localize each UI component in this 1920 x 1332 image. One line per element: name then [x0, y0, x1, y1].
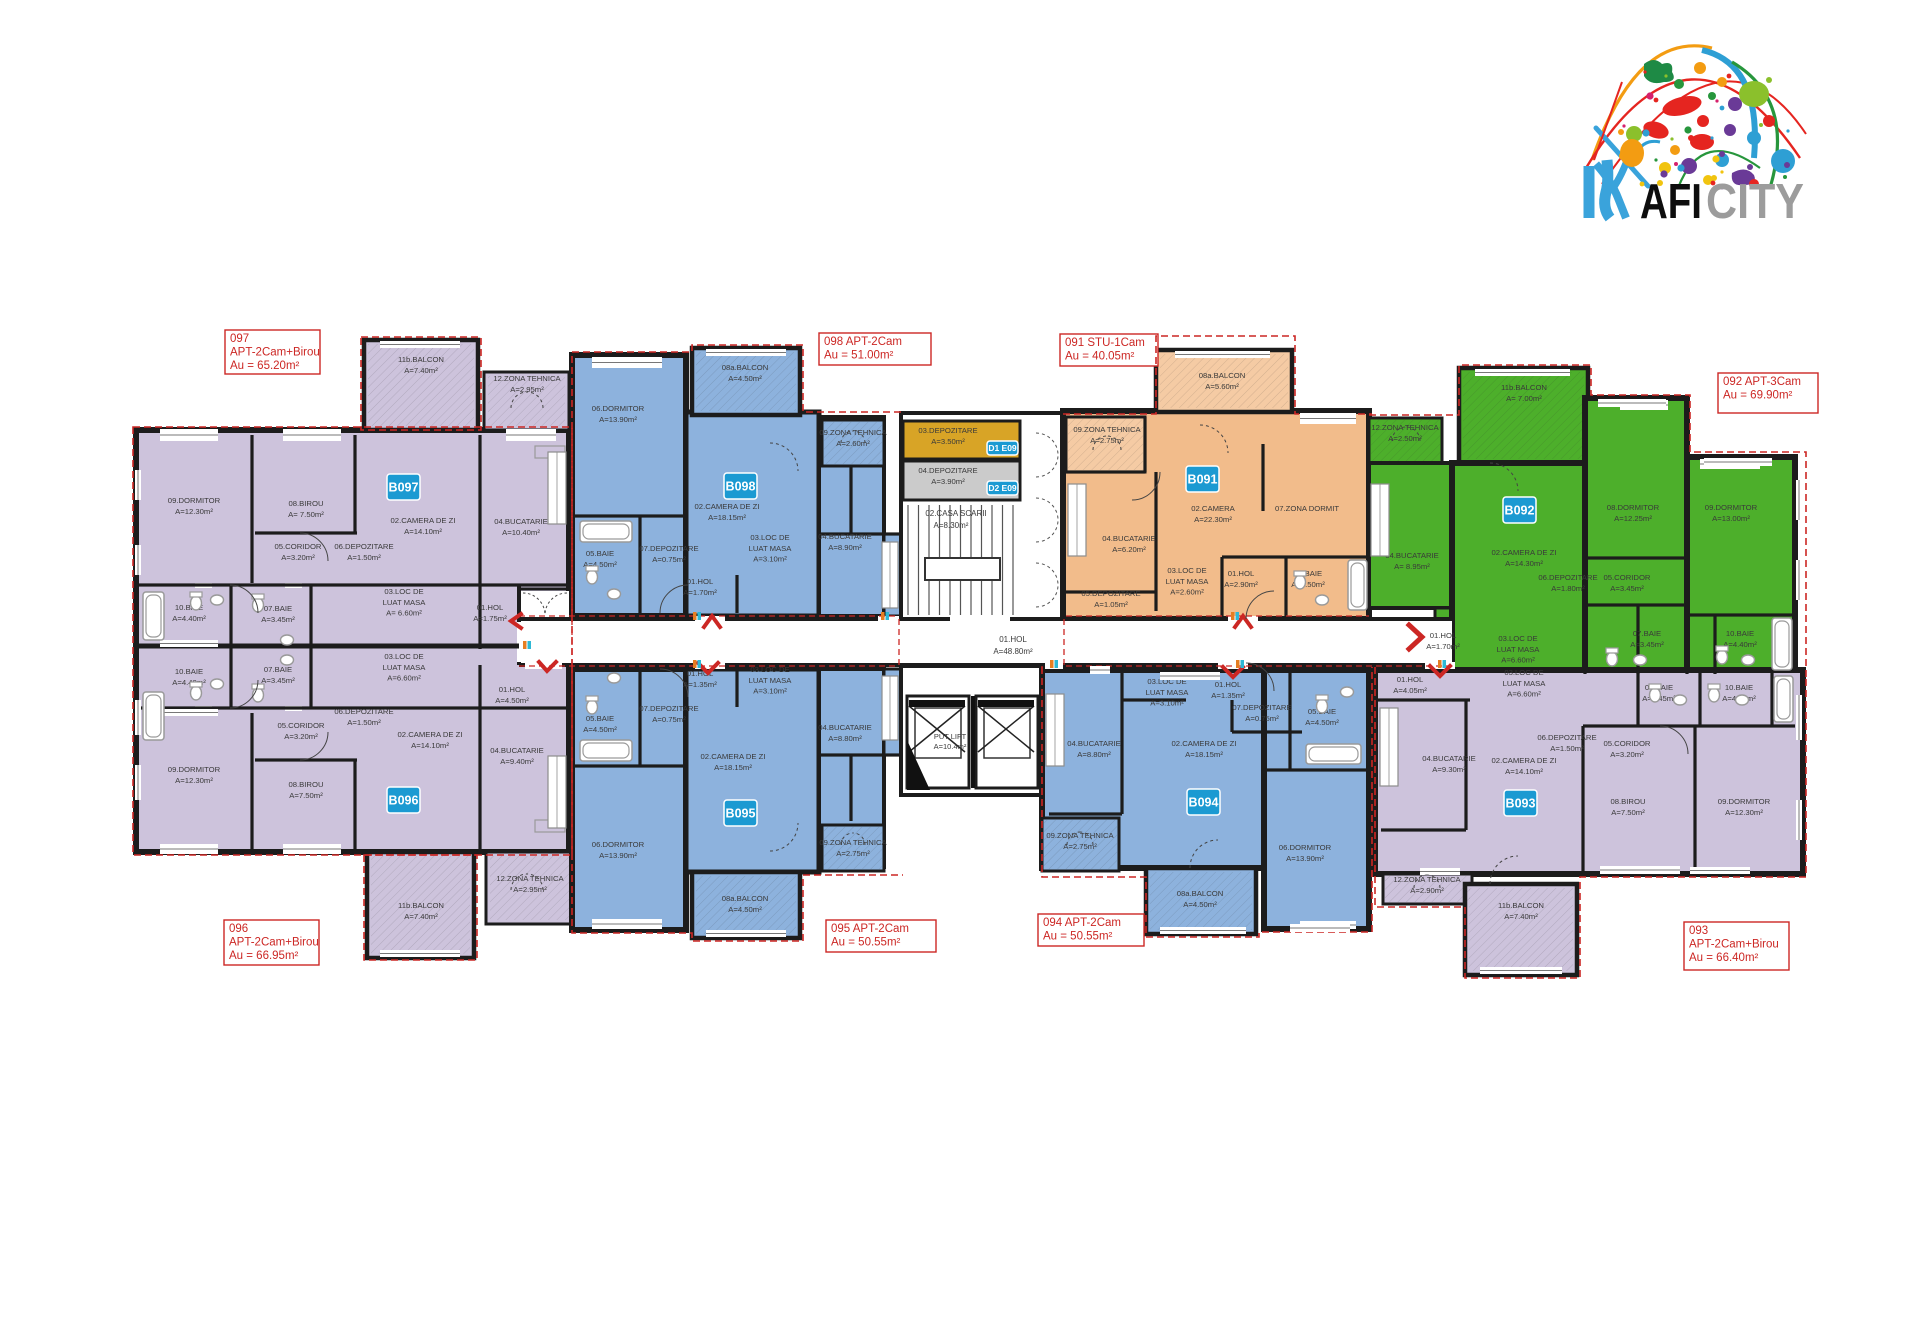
svg-text:09.DORMITOR: 09.DORMITOR — [168, 765, 221, 774]
svg-text:03.LOC DE: 03.LOC DE — [384, 587, 423, 596]
svg-text:B093: B093 — [1506, 797, 1536, 811]
svg-text:091 STU-1Cam: 091 STU-1Cam — [1065, 337, 1145, 349]
svg-text:A=3.10m²: A=3.10m² — [753, 555, 787, 564]
svg-text:A=1.80m²: A=1.80m² — [1551, 584, 1585, 593]
svg-text:A=14.30m²: A=14.30m² — [1505, 559, 1543, 568]
svg-text:094 APT-2Cam: 094 APT-2Cam — [1043, 917, 1121, 929]
svg-text:A=2.75m²: A=2.75m² — [836, 849, 870, 858]
svg-text:04.BUCATARIE: 04.BUCATARIE — [1385, 551, 1439, 560]
svg-text:11b.BALCON: 11b.BALCON — [398, 355, 444, 364]
svg-text:01.HOL: 01.HOL — [499, 685, 526, 694]
svg-text:092 APT-3Cam: 092 APT-3Cam — [1723, 376, 1801, 388]
svg-text:A= 7.00m²: A= 7.00m² — [1506, 394, 1542, 403]
svg-text:10.BAIE: 10.BAIE — [1726, 629, 1754, 638]
svg-text:A=4.40m²: A=4.40m² — [172, 614, 206, 623]
svg-text:A=3.20m²: A=3.20m² — [1610, 750, 1644, 759]
svg-text:01.HOL: 01.HOL — [1215, 680, 1242, 689]
svg-text:B098: B098 — [726, 480, 756, 494]
svg-text:10.BAIE: 10.BAIE — [1725, 683, 1753, 692]
svg-text:01.HOL: 01.HOL — [477, 603, 504, 612]
svg-text:A=3.10m²: A=3.10m² — [753, 687, 787, 696]
svg-text:08.BIROU: 08.BIROU — [288, 780, 323, 789]
svg-text:A=5.60m²: A=5.60m² — [1205, 382, 1239, 391]
svg-text:LUAT MASA: LUAT MASA — [1166, 577, 1210, 586]
svg-text:A=48.80m²: A=48.80m² — [993, 647, 1033, 656]
svg-text:A=13.90m²: A=13.90m² — [1286, 854, 1324, 863]
svg-text:07.DEPOZITARE: 07.DEPOZITARE — [639, 544, 698, 553]
svg-text:04.BUCATARIE: 04.BUCATARIE — [1102, 534, 1156, 543]
svg-text:A=8.30m²: A=8.30m² — [934, 521, 969, 530]
svg-text:A=2.90m²: A=2.90m² — [1410, 886, 1444, 895]
svg-text:A=14.10m²: A=14.10m² — [404, 527, 442, 536]
svg-text:08a.BALCON: 08a.BALCON — [1177, 889, 1224, 898]
svg-text:A=3.20m²: A=3.20m² — [284, 732, 318, 741]
svg-text:12.ZONA TEHNICA: 12.ZONA TEHNICA — [496, 874, 564, 883]
svg-text:A=12.30m²: A=12.30m² — [175, 507, 213, 516]
svg-text:05.CORIDOR: 05.CORIDOR — [1604, 573, 1651, 582]
svg-text:A=13.90m²: A=13.90m² — [599, 851, 637, 860]
svg-text:02.CAMERA DE ZI: 02.CAMERA DE ZI — [391, 516, 456, 525]
svg-text:08a.BALCON: 08a.BALCON — [722, 894, 769, 903]
svg-text:APT-2Cam+Birou: APT-2Cam+Birou — [230, 347, 320, 359]
svg-text:09.ZONA TEHNICA: 09.ZONA TEHNICA — [1073, 425, 1141, 434]
svg-text:A=9.30m²: A=9.30m² — [1432, 765, 1466, 774]
svg-text:097: 097 — [230, 333, 249, 345]
svg-text:06.DORMITOR: 06.DORMITOR — [1279, 843, 1332, 852]
svg-text:A=4.50m²: A=4.50m² — [1183, 900, 1217, 909]
svg-text:02.CAMERA DE ZI: 02.CAMERA DE ZI — [1492, 548, 1557, 557]
svg-text:A=7.40m²: A=7.40m² — [404, 366, 438, 375]
svg-text:03.DEPOZITARE: 03.DEPOZITARE — [918, 426, 977, 435]
svg-text:07.BAIE: 07.BAIE — [264, 604, 292, 613]
svg-text:A=0.75m²: A=0.75m² — [1245, 714, 1279, 723]
svg-text:09.ZONA TEHNICA: 09.ZONA TEHNICA — [819, 428, 887, 437]
svg-text:APT-2Cam+Birou: APT-2Cam+Birou — [1689, 939, 1779, 951]
svg-text:A=12.30m²: A=12.30m² — [1725, 808, 1763, 817]
svg-text:01.HOL: 01.HOL — [687, 577, 714, 586]
svg-text:A=2.90m²: A=2.90m² — [1224, 580, 1258, 589]
svg-text:04.BUCATARIE: 04.BUCATARIE — [818, 723, 872, 732]
svg-text:09.DORMITOR: 09.DORMITOR — [1718, 797, 1771, 806]
svg-text:AFI: AFI — [1640, 175, 1702, 229]
svg-text:02.CAMERA: 02.CAMERA — [1191, 504, 1235, 513]
svg-text:Au = 66.95m²: Au = 66.95m² — [229, 950, 299, 962]
svg-text:A=13.00m²: A=13.00m² — [1712, 514, 1750, 523]
svg-text:A=10.4m²: A=10.4m² — [934, 742, 967, 751]
svg-text:A=14.10m²: A=14.10m² — [1505, 767, 1543, 776]
svg-text:05.CORIDOR: 05.CORIDOR — [275, 542, 322, 551]
svg-text:01.HOL: 01.HOL — [999, 635, 1027, 644]
svg-text:07.ZONA DORMIT: 07.ZONA DORMIT — [1275, 504, 1339, 513]
svg-text:05.BAIE: 05.BAIE — [586, 549, 614, 558]
svg-text:A=6.60m²: A=6.60m² — [387, 674, 421, 683]
svg-text:A=6.60m²: A=6.60m² — [1501, 656, 1535, 665]
svg-text:LUAT MASA: LUAT MASA — [383, 663, 427, 672]
svg-text:Au = 40.05m²: Au = 40.05m² — [1065, 351, 1135, 363]
svg-text:Au = 65.20m²: Au = 65.20m² — [230, 360, 300, 372]
svg-text:A= 8.95m²: A= 8.95m² — [1394, 562, 1430, 571]
svg-text:08a.BALCON: 08a.BALCON — [722, 363, 769, 372]
svg-text:A=7.40m²: A=7.40m² — [404, 912, 438, 921]
svg-text:LUAT MASA: LUAT MASA — [1503, 679, 1547, 688]
svg-text:A=18.15m²: A=18.15m² — [1185, 750, 1223, 759]
svg-text:A=7.50m²: A=7.50m² — [289, 791, 323, 800]
svg-text:A=3.50m²: A=3.50m² — [931, 437, 965, 446]
svg-text:B091: B091 — [1188, 473, 1218, 487]
svg-text:LUAT MASA: LUAT MASA — [1146, 688, 1190, 697]
svg-text:07.DEPOZITARE: 07.DEPOZITARE — [1232, 703, 1291, 712]
svg-text:B094: B094 — [1189, 796, 1219, 810]
svg-text:A=1.70m²: A=1.70m² — [683, 588, 717, 597]
svg-text:08.BIROU: 08.BIROU — [1610, 797, 1645, 806]
svg-text:11b.BALCON: 11b.BALCON — [1498, 901, 1544, 910]
svg-text:A=3.45m²: A=3.45m² — [261, 676, 295, 685]
svg-text:A=1.75m²: A=1.75m² — [473, 614, 507, 623]
svg-text:CITY: CITY — [1706, 175, 1804, 229]
svg-text:03.LOC DE: 03.LOC DE — [1167, 566, 1206, 575]
svg-text:06.DEPOZITARE: 06.DEPOZITARE — [1538, 573, 1597, 582]
svg-text:05.CORIDOR: 05.CORIDOR — [278, 721, 325, 730]
svg-text:A=22.30m²: A=22.30m² — [1194, 515, 1232, 524]
svg-text:A=6.60m²: A=6.60m² — [1507, 690, 1541, 699]
svg-text:03.LOC DE: 03.LOC DE — [1504, 668, 1543, 677]
svg-text:A=13.90m²: A=13.90m² — [599, 415, 637, 424]
svg-text:A=1.70m²: A=1.70m² — [1426, 642, 1460, 651]
svg-text:095 APT-2Cam: 095 APT-2Cam — [831, 923, 909, 935]
svg-text:04.BUCATARIE: 04.BUCATARIE — [1422, 754, 1476, 763]
svg-text:A=0.75m²: A=0.75m² — [652, 715, 686, 724]
svg-text:A= 6.60m²: A= 6.60m² — [386, 609, 422, 618]
svg-text:Au = 50.55m²: Au = 50.55m² — [831, 937, 901, 949]
svg-text:D2 E09: D2 E09 — [988, 483, 1017, 493]
svg-text:07.DEPOZITARE: 07.DEPOZITARE — [639, 704, 698, 713]
svg-text:A=1.35m²: A=1.35m² — [683, 680, 717, 689]
svg-text:01.HOL: 01.HOL — [1228, 569, 1255, 578]
svg-text:B092: B092 — [1505, 504, 1535, 518]
svg-text:A=4.05m²: A=4.05m² — [1393, 686, 1427, 695]
svg-text:A=7.50m²: A=7.50m² — [1611, 808, 1645, 817]
svg-text:A=4.50m²: A=4.50m² — [1305, 718, 1339, 727]
svg-text:A=3.20m²: A=3.20m² — [281, 553, 315, 562]
svg-text:08.BIROU: 08.BIROU — [288, 499, 323, 508]
svg-text:09.DORMITOR: 09.DORMITOR — [1705, 503, 1758, 512]
svg-text:09.DORMITOR: 09.DORMITOR — [168, 496, 221, 505]
svg-text:03.LOC DE: 03.LOC DE — [750, 533, 789, 542]
svg-text:Au = 66.40m²: Au = 66.40m² — [1689, 952, 1759, 964]
svg-text:A=6.20m²: A=6.20m² — [1112, 545, 1146, 554]
svg-text:01.HOL: 01.HOL — [1397, 675, 1424, 684]
svg-text:12.ZONA TEHNICA: 12.ZONA TEHNICA — [1371, 423, 1439, 432]
svg-text:02.CAMERA DE ZI: 02.CAMERA DE ZI — [398, 730, 463, 739]
svg-text:04.BUCATARIE: 04.BUCATARIE — [490, 746, 544, 755]
svg-text:A=7.40m²: A=7.40m² — [1504, 912, 1538, 921]
svg-text:LUAT MASA: LUAT MASA — [749, 544, 793, 553]
svg-text:Au = 50.55m²: Au = 50.55m² — [1043, 931, 1113, 943]
svg-text:A=12.25m²: A=12.25m² — [1614, 514, 1652, 523]
svg-text:10.BAIE: 10.BAIE — [175, 667, 203, 676]
svg-text:06.DEPOZITARE: 06.DEPOZITARE — [1537, 733, 1596, 742]
svg-text:09.ZONA TEHNICA: 09.ZONA TEHNICA — [819, 838, 887, 847]
svg-text:A=1.35m²: A=1.35m² — [1211, 691, 1245, 700]
svg-text:096: 096 — [229, 923, 248, 935]
svg-text:A=12.30m²: A=12.30m² — [175, 776, 213, 785]
svg-text:A=4.50m²: A=4.50m² — [728, 374, 762, 383]
svg-text:A=4.50m²: A=4.50m² — [583, 725, 617, 734]
svg-text:A=9.40m²: A=9.40m² — [500, 757, 534, 766]
svg-text:A=2.60m²: A=2.60m² — [1170, 588, 1204, 597]
svg-text:02.CAMERA DE ZI: 02.CAMERA DE ZI — [695, 502, 760, 511]
svg-text:A=8.80m²: A=8.80m² — [828, 734, 862, 743]
svg-text:Au = 51.00m²: Au = 51.00m² — [824, 350, 894, 362]
svg-text:A=14.10m²: A=14.10m² — [411, 741, 449, 750]
svg-text:02.CAMERA DE ZI: 02.CAMERA DE ZI — [1492, 756, 1557, 765]
svg-text:A=10.40m²: A=10.40m² — [502, 528, 540, 537]
svg-text:A= 7.50m²: A= 7.50m² — [288, 510, 324, 519]
svg-text:05.CORIDOR: 05.CORIDOR — [1604, 739, 1651, 748]
svg-text:A=18.15m²: A=18.15m² — [708, 513, 746, 522]
svg-text:A=4.50m²: A=4.50m² — [728, 905, 762, 914]
svg-text:A=3.45m²: A=3.45m² — [1630, 640, 1664, 649]
svg-text:01.HOL: 01.HOL — [1430, 631, 1457, 640]
svg-text:APT-2Cam+Birou: APT-2Cam+Birou — [229, 937, 319, 949]
svg-text:04.BUCATARIE: 04.BUCATARIE — [1067, 739, 1121, 748]
svg-text:A=8.80m²: A=8.80m² — [1077, 750, 1111, 759]
svg-text:A=8.90m²: A=8.90m² — [828, 543, 862, 552]
svg-text:06.DORMITOR: 06.DORMITOR — [592, 840, 645, 849]
svg-text:11b.BALCON: 11b.BALCON — [1501, 383, 1547, 392]
svg-text:03.LOC DE: 03.LOC DE — [384, 652, 423, 661]
svg-text:04.BUCATARIE: 04.BUCATARIE — [818, 532, 872, 541]
svg-text:A=0.75m²: A=0.75m² — [652, 555, 686, 564]
svg-text:Au = 69.90m²: Au = 69.90m² — [1723, 390, 1793, 402]
svg-text:LUAT MASA: LUAT MASA — [383, 598, 427, 607]
svg-text:06.DORMITOR: 06.DORMITOR — [592, 404, 645, 413]
svg-text:04.BUCATARIE: 04.BUCATARIE — [494, 517, 548, 526]
svg-text:A=18.15m²: A=18.15m² — [714, 763, 752, 772]
svg-text:04.DEPOZITARE: 04.DEPOZITARE — [918, 466, 977, 475]
svg-text:02.CAMERA DE ZI: 02.CAMERA DE ZI — [701, 752, 766, 761]
svg-text:11b.BALCON: 11b.BALCON — [398, 901, 444, 910]
svg-text:08.DORMITOR: 08.DORMITOR — [1607, 503, 1660, 512]
svg-text:02.CAMERA DE ZI: 02.CAMERA DE ZI — [1172, 739, 1237, 748]
svg-text:A=4.50m²: A=4.50m² — [495, 696, 529, 705]
svg-text:B097: B097 — [389, 481, 419, 495]
svg-text:12.ZONA TEHNICA: 12.ZONA TEHNICA — [493, 374, 561, 383]
svg-text:A=3.90m²: A=3.90m² — [931, 477, 965, 486]
svg-text:A=3.10m²: A=3.10m² — [1150, 699, 1184, 708]
svg-text:093: 093 — [1689, 925, 1708, 937]
svg-text:05.BAIE: 05.BAIE — [586, 714, 614, 723]
svg-text:B096: B096 — [389, 794, 419, 808]
svg-text:A=3.45m²: A=3.45m² — [1610, 584, 1644, 593]
svg-text:08a.BALCON: 08a.BALCON — [1199, 371, 1246, 380]
svg-text:A=1.50m²: A=1.50m² — [1550, 744, 1584, 753]
svg-text:07.BAIE: 07.BAIE — [1633, 629, 1661, 638]
svg-text:A=1.50m²: A=1.50m² — [347, 718, 381, 727]
svg-text:12.ZONA TEHNICA: 12.ZONA TEHNICA — [1393, 875, 1461, 884]
svg-text:A=3.45m²: A=3.45m² — [261, 615, 295, 624]
svg-text:PUT LIFT: PUT LIFT — [934, 732, 967, 741]
svg-text:A=1.05m²: A=1.05m² — [1094, 600, 1128, 609]
svg-text:06.DEPOZITARE: 06.DEPOZITARE — [334, 707, 393, 716]
svg-text:098 APT-2Cam: 098 APT-2Cam — [824, 336, 902, 348]
svg-text:A=2.95m²: A=2.95m² — [513, 885, 547, 894]
svg-text:07.BAIE: 07.BAIE — [264, 665, 292, 674]
svg-text:B095: B095 — [726, 807, 756, 821]
svg-text:A=2.75m²: A=2.75m² — [1063, 842, 1097, 851]
svg-text:LUAT MASA: LUAT MASA — [1497, 645, 1541, 654]
svg-text:03.LOC DE: 03.LOC DE — [1498, 634, 1537, 643]
svg-text:A=1.50m²: A=1.50m² — [347, 553, 381, 562]
svg-text:LUAT MASA: LUAT MASA — [749, 676, 793, 685]
svg-text:02.CASA SCARII: 02.CASA SCARII — [925, 509, 986, 518]
svg-text:D1 E09: D1 E09 — [988, 443, 1017, 453]
svg-text:06.DEPOZITARE: 06.DEPOZITARE — [334, 542, 393, 551]
svg-text:05.DEPOZITARE: 05.DEPOZITARE — [1081, 589, 1140, 598]
